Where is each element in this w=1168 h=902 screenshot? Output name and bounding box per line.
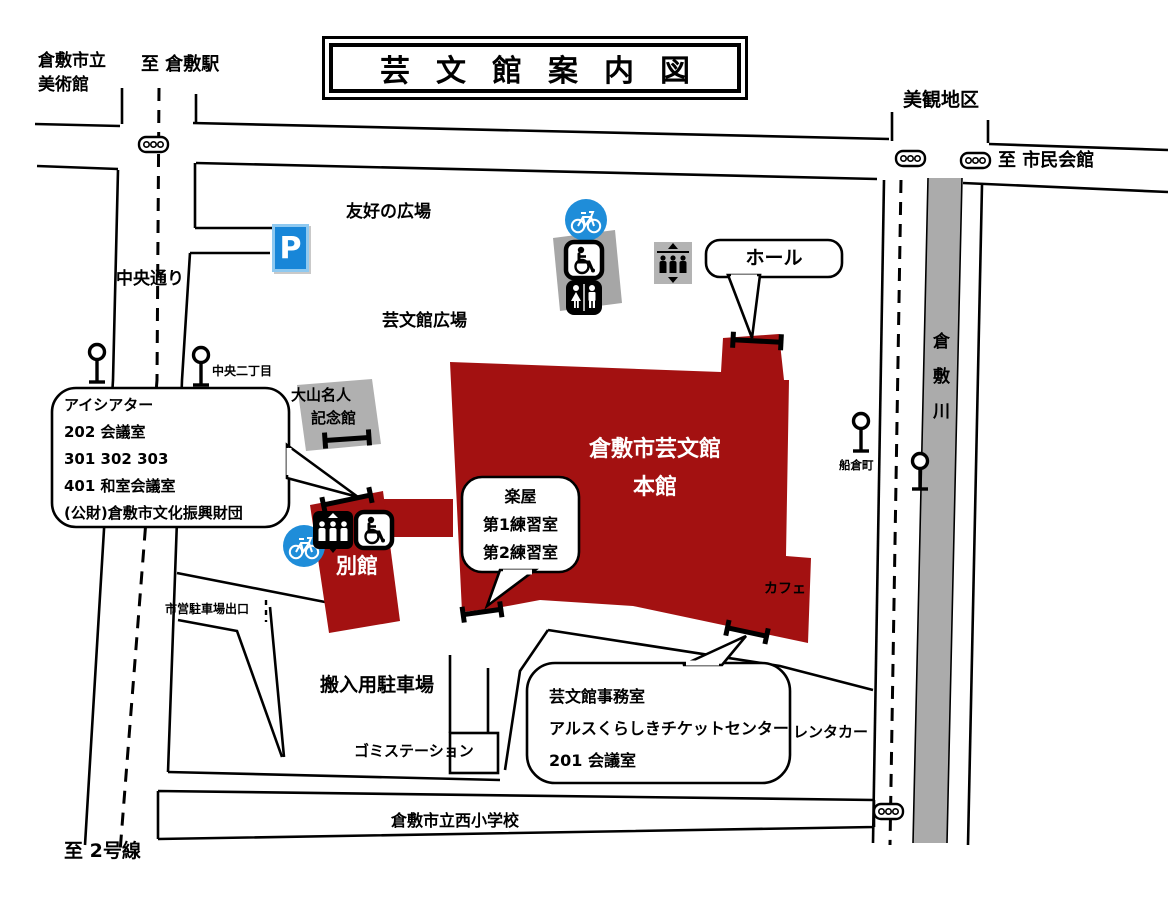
label-friendship-plaza: 友好の広場 bbox=[346, 197, 431, 222]
wheelchair-icon bbox=[356, 512, 392, 548]
hall-callout-tail bbox=[728, 275, 760, 338]
office-callout-text: 芸文館事務室 アルスくらしきチケットセンター 201 会議室 bbox=[549, 681, 789, 777]
dash-riverside-road bbox=[890, 180, 901, 845]
road-bikan-gateway bbox=[892, 112, 988, 143]
label-main-building-2: 本館 bbox=[560, 469, 750, 501]
street-lamp-icon bbox=[193, 348, 209, 386]
map-canvas: 芸文館案内図 倉敷市立 美術館 至 倉敷駅 美観地区 至 市民会館 友好の広場 … bbox=[0, 0, 1168, 902]
street-lamp-icon bbox=[89, 345, 105, 383]
parking-sign-icon: P bbox=[272, 224, 309, 272]
label-chuo-2chome: 中央二丁目 bbox=[212, 362, 272, 379]
rehearsal-callout-text: 楽屋 第1練習室 第2練習室 bbox=[462, 483, 579, 567]
map-title: 芸文館案内図 bbox=[354, 46, 716, 90]
label-cafe: カフェ bbox=[764, 578, 806, 598]
elevator-icon bbox=[313, 511, 353, 553]
road-parking-exit-west bbox=[178, 620, 282, 757]
label-chuo-street: 中央通り bbox=[116, 264, 184, 289]
label-loading-parking: 搬入用駐車場 bbox=[320, 670, 434, 697]
hall-callout-label: ホール bbox=[706, 240, 842, 277]
label-to-civic-hall: 至 市民会館 bbox=[998, 146, 1094, 172]
label-oyama-memorial-2: 記念館 bbox=[311, 407, 356, 428]
label-to-route2: 至 2号線 bbox=[64, 836, 141, 863]
label-city-parking-exit: 市営駐車場出口 bbox=[165, 600, 249, 617]
map-title-box: 芸文館案内図 bbox=[322, 36, 748, 100]
road-riverside-east-edge bbox=[968, 185, 982, 845]
bicycle-icon bbox=[565, 199, 607, 241]
label-annex: 別館 bbox=[336, 550, 378, 580]
elevator-icon bbox=[654, 242, 692, 284]
restroom-icon bbox=[566, 280, 602, 315]
road-top-upper-left bbox=[35, 124, 120, 126]
label-main-building-1: 倉敷市芸文館 bbox=[560, 431, 750, 463]
traffic-light-icon bbox=[139, 137, 168, 152]
parking-sign-letter: P bbox=[280, 231, 302, 266]
traffic-light-icon bbox=[896, 151, 925, 166]
label-rent-a-car: レンタカー bbox=[793, 721, 868, 742]
traffic-light-icon bbox=[874, 804, 903, 819]
label-to-kurashiki-station: 至 倉敷駅 bbox=[141, 50, 219, 76]
label-kurashiki-river: 倉敷川 bbox=[927, 332, 952, 437]
street-lamp-icon bbox=[853, 414, 869, 452]
road-riverside-west-edge bbox=[873, 180, 884, 843]
label-funakura-cho: 船倉町 bbox=[839, 457, 874, 473]
road-top-lower-left bbox=[37, 166, 118, 169]
label-oyama-memorial-1: 大山名人 bbox=[291, 384, 351, 405]
itheater-callout-tail bbox=[287, 445, 358, 497]
map-title-frame: 芸文館案内図 bbox=[329, 43, 741, 93]
label-bikan-district: 美観地区 bbox=[903, 85, 979, 112]
garbage-enclosure-lines bbox=[450, 655, 488, 733]
road-top-upper-mid bbox=[193, 123, 889, 139]
label-garbage-station: ゴミステーション bbox=[354, 740, 474, 761]
road-parking-exit-top bbox=[177, 573, 325, 602]
itheater-callout-text: アイシアター 202 会議室 301 302 303 401 和室会議室 (公財… bbox=[64, 392, 243, 527]
road-top-lower-right bbox=[963, 183, 1168, 192]
label-art-museum: 倉敷市立 美術館 bbox=[38, 49, 106, 97]
wheelchair-icon bbox=[566, 242, 602, 278]
road-top-lower-mid bbox=[196, 163, 877, 179]
traffic-light-icon bbox=[961, 153, 990, 168]
label-geibunkan-plaza: 芸文館広場 bbox=[382, 306, 467, 331]
road-parking-exit-east bbox=[270, 607, 284, 757]
road-parking-driveway bbox=[190, 228, 272, 253]
label-nishi-elementary: 倉敷市立西小学校 bbox=[391, 807, 519, 831]
